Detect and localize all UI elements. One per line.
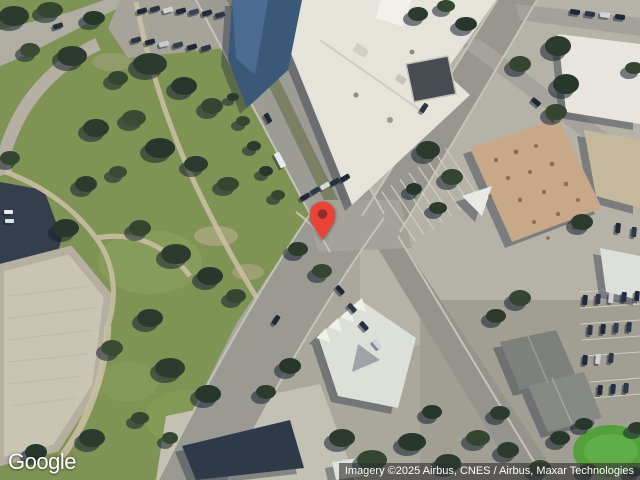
- map-canvas[interactable]: Google Imagery ©2025 Airbus, CNES / Airb…: [0, 0, 640, 480]
- google-logo[interactable]: Google: [8, 449, 76, 475]
- satellite-imagery[interactable]: [0, 0, 640, 480]
- imagery-attribution: Imagery ©2025 Airbus, CNES / Airbus, Max…: [339, 463, 640, 480]
